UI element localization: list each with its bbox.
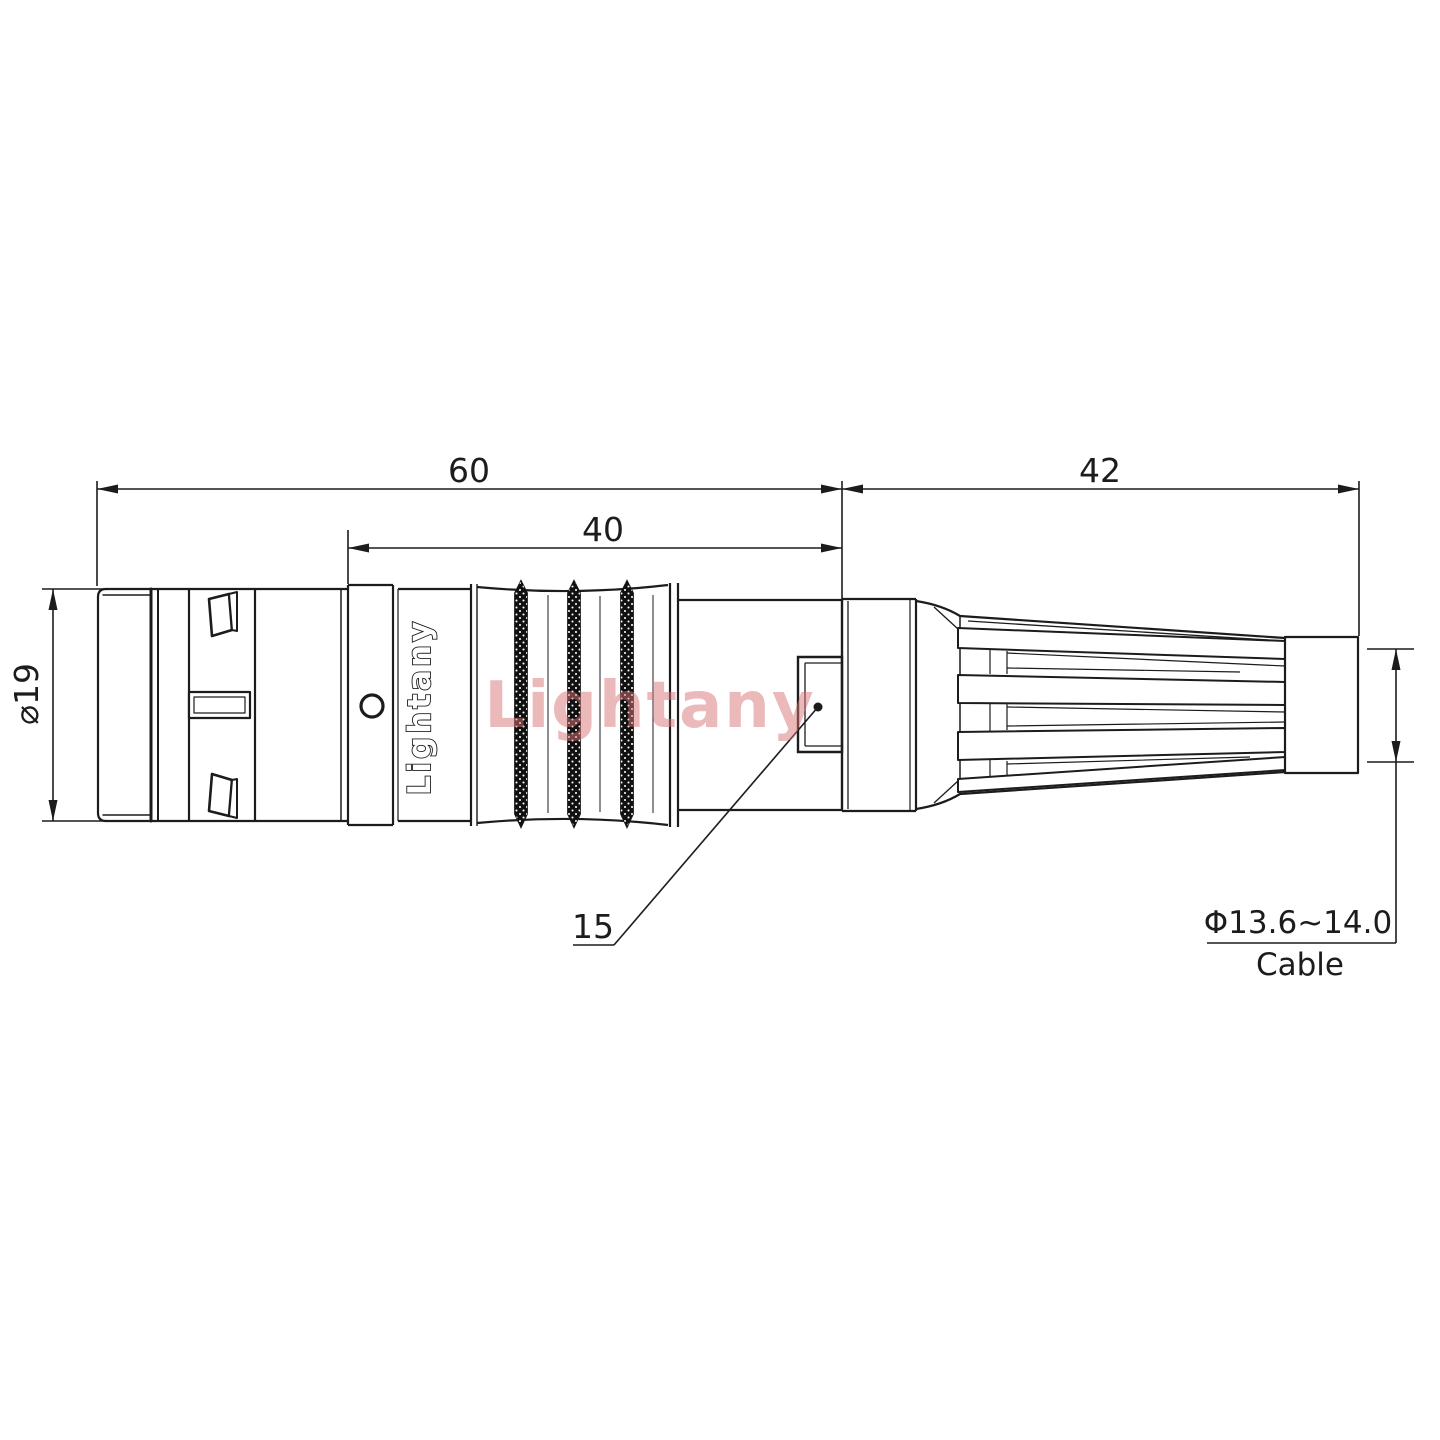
watermark-text: Lightany [484,669,815,743]
vent-hole [361,695,383,717]
arrowhead [348,544,369,553]
key-window [189,692,250,718]
arrowhead [49,800,58,821]
leader-value-15: 15 [572,907,614,946]
cable-diameter-value: Φ13.6~14.0 [1204,905,1392,941]
dimension-value-42: 42 [1079,451,1121,490]
dimension-value-40: 40 [582,510,624,549]
engraved-brand-text: Lightany [402,619,438,796]
cable-label: Cable [1256,947,1344,983]
connector-back-ring [842,599,916,811]
dimension-total-length: 60 [97,451,842,586]
strain-relief-boot [916,601,1358,809]
connector-collar [348,585,398,825]
cable-end-cap [1285,637,1358,773]
boot-fin [958,728,1285,760]
boot-fin [958,675,1285,705]
dimension-value-d19: ⌀19 [7,663,46,725]
dimension-body-diameter: ⌀19 [7,589,104,821]
connector-drawing: 60 42 40 ⌀19 [0,0,1440,1440]
arrowhead [821,485,842,494]
shoulder-line [934,781,958,803]
front-face [98,589,106,821]
arrowhead [1392,741,1401,762]
dimension-mid-length: 40 [348,510,842,584]
arrowhead [49,589,58,610]
dimension-boot-length: 42 [842,451,1359,636]
connector-bayonet-features [189,592,250,818]
arrowhead [97,485,118,494]
arrowhead [1392,649,1401,670]
dimension-value-60: 60 [448,451,490,490]
arrowhead [821,544,842,553]
arrowhead [842,485,863,494]
drawing-sheet: 60 42 40 ⌀19 [0,0,1440,1440]
shoulder-line [934,607,958,629]
arrowhead [1338,485,1359,494]
